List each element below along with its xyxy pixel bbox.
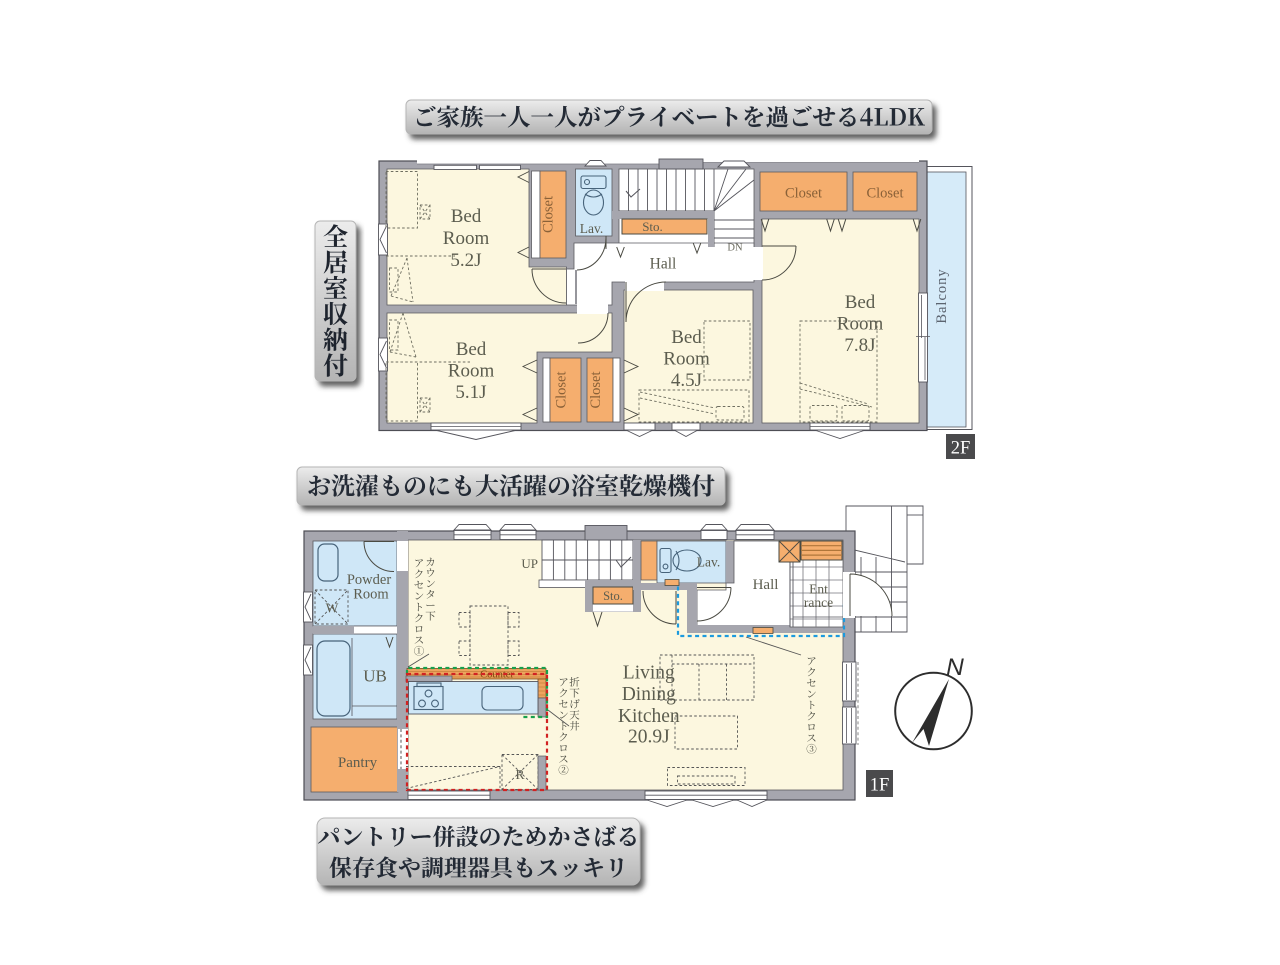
- svg-text:Closet: Closet: [554, 371, 570, 408]
- svg-text:R: R: [515, 767, 524, 782]
- svg-text:W: W: [326, 601, 339, 616]
- svg-text:Closet: Closet: [785, 186, 822, 202]
- svg-text:Room: Room: [663, 349, 710, 370]
- svg-text:Dining: Dining: [622, 684, 676, 705]
- svg-text:5.1J: 5.1J: [455, 382, 486, 403]
- svg-text:Bed: Bed: [456, 339, 487, 360]
- svg-text:2F: 2F: [951, 439, 971, 459]
- svg-text:Kitchen: Kitchen: [618, 706, 680, 727]
- svg-text:UP: UP: [521, 556, 538, 571]
- svg-text:Room: Room: [837, 314, 884, 335]
- svg-text:UB: UB: [363, 667, 387, 686]
- svg-text:4.5J: 4.5J: [671, 370, 702, 391]
- svg-text:Sto.: Sto.: [642, 219, 663, 234]
- svg-text:20.9J: 20.9J: [628, 727, 670, 748]
- svg-text:Bed: Bed: [845, 292, 876, 313]
- svg-text:rance: rance: [804, 595, 833, 610]
- svg-text:Balcony: Balcony: [934, 268, 950, 323]
- svg-text:Bed: Bed: [451, 206, 482, 227]
- svg-text:5.2J: 5.2J: [450, 250, 481, 271]
- svg-text:Hall: Hall: [650, 256, 677, 273]
- svg-text:Closet: Closet: [588, 371, 604, 408]
- svg-text:Hall: Hall: [753, 577, 779, 593]
- svg-text:Lav.: Lav.: [697, 555, 721, 570]
- svg-text:Pantry: Pantry: [338, 755, 378, 771]
- svg-text:Sto.: Sto.: [603, 589, 623, 603]
- svg-text:N: N: [946, 654, 964, 681]
- svg-text:Room: Room: [353, 587, 389, 603]
- svg-text:Closet: Closet: [866, 186, 903, 202]
- svg-text:Room: Room: [448, 361, 495, 382]
- svg-text:7.8J: 7.8J: [844, 335, 875, 356]
- svg-text:Living: Living: [623, 663, 675, 684]
- svg-text:Room: Room: [443, 228, 490, 249]
- svg-text:Lav.: Lav.: [580, 221, 604, 236]
- svg-text:1F: 1F: [870, 776, 890, 796]
- svg-text:DN: DN: [727, 243, 743, 254]
- svg-text:Closet: Closet: [541, 196, 557, 233]
- svg-text:Bed: Bed: [671, 327, 702, 348]
